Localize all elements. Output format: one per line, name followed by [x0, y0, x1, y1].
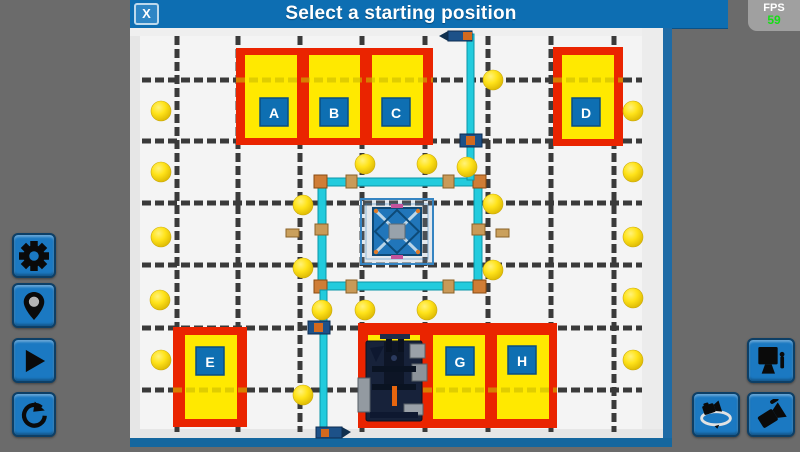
- ball: [457, 157, 477, 177]
- field-wall-right: [663, 28, 672, 447]
- ball: [483, 194, 503, 214]
- orbit-camera-icon: [699, 399, 733, 431]
- play-button[interactable]: [12, 338, 56, 383]
- fps-value: 59: [748, 13, 800, 27]
- ball: [623, 288, 643, 308]
- field-view: ABCDEGH: [130, 28, 672, 447]
- ball: [623, 350, 643, 370]
- fps-indicator: FPS 59: [748, 0, 800, 31]
- start-position-label-C[interactable]: C: [382, 98, 410, 126]
- settings-button[interactable]: [12, 233, 56, 278]
- start-position-label-E[interactable]: E: [196, 347, 224, 375]
- ball: [623, 227, 643, 247]
- orbit-camera-button[interactable]: [692, 392, 740, 437]
- start-position-label-B[interactable]: B: [320, 98, 348, 126]
- free-camera-button[interactable]: [747, 392, 795, 437]
- svg-text:B: B: [329, 105, 339, 121]
- ball: [312, 300, 332, 320]
- start-position-label-D[interactable]: D: [572, 98, 600, 126]
- ball: [151, 101, 171, 121]
- tilted-camera-icon: [754, 399, 788, 431]
- svg-text:A: A: [269, 105, 279, 121]
- robot-top-view: [358, 334, 427, 421]
- field-wall-bottom: [130, 438, 672, 447]
- ball: [417, 154, 437, 174]
- start-position-label-G[interactable]: G: [446, 347, 474, 375]
- reset-button[interactable]: [12, 392, 56, 437]
- start-position-label-H[interactable]: H: [508, 346, 536, 374]
- ball: [623, 101, 643, 121]
- set-position-button[interactable]: [12, 283, 56, 328]
- svg-text:D: D: [581, 105, 591, 121]
- start-position-label-A[interactable]: A: [260, 98, 288, 126]
- play-icon: [20, 347, 48, 375]
- ball: [483, 260, 503, 280]
- svg-text:C: C: [391, 105, 401, 121]
- ball: [623, 162, 643, 182]
- ball: [293, 195, 313, 215]
- ball: [151, 350, 171, 370]
- ball: [151, 162, 171, 182]
- monitor-joystick-icon: [755, 345, 787, 377]
- svg-text:G: G: [455, 354, 466, 370]
- center-platform: [361, 199, 433, 264]
- ball: [293, 385, 313, 405]
- location-pin-icon: [20, 290, 48, 322]
- ball: [355, 300, 375, 320]
- ball: [483, 70, 503, 90]
- ball: [417, 300, 437, 320]
- svg-text:H: H: [517, 353, 527, 369]
- svg-text:E: E: [205, 354, 214, 370]
- ball: [151, 227, 171, 247]
- ball: [355, 154, 375, 174]
- screen-view-button[interactable]: [747, 338, 795, 383]
- dialog-title: Select a starting position: [130, 0, 672, 28]
- ball: [293, 258, 313, 278]
- ball: [150, 290, 170, 310]
- reset-rotate-icon: [19, 400, 49, 430]
- gear-icon: [19, 241, 49, 271]
